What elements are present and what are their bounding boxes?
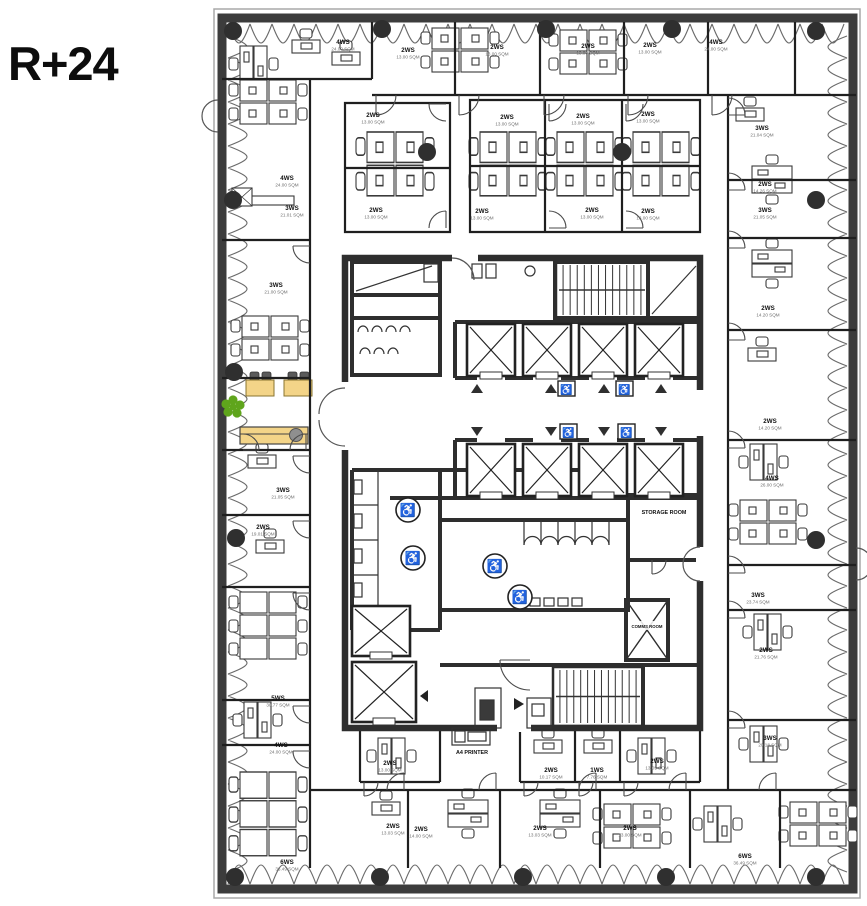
- desk-cluster: [779, 802, 857, 846]
- printer: [468, 732, 486, 741]
- room-area-label: 13.00 SQM: [470, 216, 493, 221]
- elevator-door: [536, 492, 558, 499]
- room-ws-label: 3WS: [269, 282, 282, 289]
- room-area-label: 24.00 SQM: [331, 47, 354, 52]
- window-scallop-row: [228, 865, 844, 884]
- structural-column: [224, 22, 242, 40]
- wheelchair-icon: ♿: [616, 381, 633, 396]
- room-area-label: 23.74 SQM: [746, 600, 769, 605]
- room-area-label: 14.20 SQM: [758, 426, 781, 431]
- elevator-up-icon: [598, 384, 610, 393]
- room-ws-label: 2WS: [490, 44, 503, 51]
- room-area-label: 24.00 SQM: [275, 183, 298, 188]
- elevator: [523, 444, 571, 499]
- room-area-label: 13.00 SQM: [576, 51, 599, 56]
- desk-cluster: [584, 729, 612, 753]
- stall-door-arcs: [524, 537, 609, 546]
- room-area-label: 13.00 SQM: [571, 121, 594, 126]
- room-area-label: 13.00 SQM: [485, 52, 508, 57]
- door-swing-arc: [429, 211, 446, 228]
- svg-text:♿: ♿: [400, 503, 416, 518]
- room-area-label: 13.00 SQM: [636, 119, 659, 124]
- floor-plan-page: R+24: [0, 0, 867, 906]
- room-area-label: 21.76 SQM: [754, 655, 777, 660]
- desk-cluster: [229, 772, 307, 856]
- room-ws-label: 2WS: [533, 825, 546, 832]
- structural-column: [807, 191, 825, 209]
- desk-cluster: [469, 132, 547, 196]
- room-ws-label: 2WS: [500, 114, 513, 121]
- room-area-label: 13.00 SQM: [580, 215, 603, 220]
- elevator-up-icon: [545, 384, 557, 393]
- elevator: [523, 324, 571, 379]
- door-swing-arc: [429, 104, 446, 121]
- room-ws-label: 2WS: [759, 647, 772, 654]
- room-ws-label: 4WS: [280, 175, 293, 182]
- room-area-label: 14.26 SQM: [753, 189, 776, 194]
- sink: [572, 598, 582, 606]
- room-area-label: 13.00 SQM: [618, 833, 641, 838]
- svg-text:♿: ♿: [618, 383, 630, 396]
- desk-cluster: [534, 729, 562, 753]
- room-labels: 4WS24.00 SQM2WS13.00 SQM2WS13.00 SQM2WS1…: [251, 39, 783, 872]
- elevator: [635, 324, 683, 379]
- wheelchair-icon: ♿: [401, 546, 425, 570]
- structural-column: [227, 529, 245, 547]
- desk-cluster: [736, 97, 764, 121]
- marker-petal: [221, 399, 230, 408]
- room-area-label: 21.04 SQM: [750, 133, 773, 138]
- desk-cluster: [356, 132, 434, 196]
- wheelchair-icon: ♿: [558, 381, 575, 396]
- elevator: [635, 444, 683, 499]
- structural-column: [537, 20, 555, 38]
- room-area-label: 36.49 SQM: [275, 867, 298, 872]
- wheelchair-icon: ♿: [618, 424, 635, 439]
- wheelchair-icon: ♿: [508, 585, 532, 609]
- door-swing-arc: [728, 323, 745, 340]
- desk-cluster: [622, 132, 700, 196]
- room-area-label: 13.00 SQM: [495, 122, 518, 127]
- door-swing-arc: [293, 706, 310, 723]
- structural-column: [371, 868, 389, 886]
- room-area-label: 13.00 SQM: [361, 120, 384, 125]
- room-area-label: 20.18 SQM: [758, 743, 781, 748]
- elevator: [579, 324, 627, 379]
- printer: [455, 731, 465, 742]
- wheelchair-icon: ♿: [483, 554, 507, 578]
- elevator-door: [480, 492, 502, 499]
- room-area-label: 13.03 SQM: [528, 833, 551, 838]
- structural-column: [657, 868, 675, 886]
- desk-cluster: [729, 500, 807, 544]
- door-swing-arc: [759, 773, 776, 790]
- elevator-down-icon: [545, 427, 557, 436]
- elevator-down-icon: [471, 427, 483, 436]
- room-ws-label: 2WS: [544, 767, 557, 774]
- room-area-label: 13.00 SQM: [364, 215, 387, 220]
- toilet-stall-walls: [524, 520, 609, 545]
- room-ws-label: 2WS: [576, 113, 589, 120]
- elevator-up-icon: [471, 384, 483, 393]
- room-ws-label: 3WS: [285, 205, 298, 212]
- door-swing-arc: [652, 560, 666, 574]
- structural-column: [373, 20, 391, 38]
- room-area-label: 21.01 SQM: [280, 213, 303, 218]
- room-ws-label: 5WS: [271, 695, 284, 702]
- elevator-down-icon: [655, 427, 667, 436]
- door-swing-arc: [549, 211, 566, 228]
- structural-column: [418, 143, 436, 161]
- room-ws-label: 3WS: [276, 487, 289, 494]
- direction-arrow-icon: [420, 690, 428, 702]
- room-ws-label: 3WS: [758, 207, 771, 214]
- svg-text:♿: ♿: [562, 426, 574, 439]
- structural-column: [514, 868, 532, 886]
- desk-cluster: [229, 80, 307, 124]
- room-ws-label: 2WS: [650, 758, 663, 765]
- urinals: [358, 326, 410, 332]
- room-ws-label: 2WS: [641, 111, 654, 118]
- room-area-label: 36.49 SQM: [733, 861, 756, 866]
- sink: [544, 598, 554, 606]
- door-swing-arc: [293, 246, 310, 263]
- door-swing-arc: [293, 521, 310, 538]
- elevator-door: [592, 492, 614, 499]
- room-ws-label: 1WS: [590, 767, 603, 774]
- structural-column: [613, 143, 631, 161]
- room-ws-label: 4WS: [709, 39, 722, 46]
- structural-column: [663, 20, 681, 38]
- room-area-label: 26.00 SQM: [760, 483, 783, 488]
- door-swing-arc: [293, 456, 310, 473]
- elevator: [467, 444, 515, 499]
- desk-cluster: [248, 444, 276, 468]
- room-area-label: 21.05 SQM: [753, 215, 776, 220]
- elevator-door: [480, 372, 502, 379]
- elevator-door: [536, 372, 558, 379]
- desk-cluster: [693, 806, 742, 842]
- toilet-stall-walls: [352, 470, 378, 605]
- shaft-diagonal: [356, 266, 432, 291]
- room-area-label: 14.00 SQM: [409, 834, 432, 839]
- svg-text:♿: ♿: [560, 383, 572, 396]
- elevator: [467, 324, 515, 379]
- direction-arrow-icon: [514, 698, 524, 710]
- meeting-table: [284, 380, 312, 396]
- room-area-label: 24.00 SQM: [704, 47, 727, 52]
- room-ws-label: 4WS: [336, 39, 349, 46]
- room-ws-label: 2WS: [623, 825, 636, 832]
- room-ws-label: 2WS: [641, 208, 654, 215]
- elevator: [579, 444, 627, 499]
- room-ws-label: 4WS: [765, 475, 778, 482]
- room-ws-label: 3WS: [763, 735, 776, 742]
- room-ws-label: 2WS: [256, 524, 269, 531]
- office-desks: [229, 28, 857, 856]
- elevator-door: [648, 492, 670, 499]
- room-area-label: 7.76 SQM: [587, 775, 608, 780]
- marker-petal: [235, 400, 244, 409]
- stair-flight: [553, 667, 643, 726]
- room-ws-label: 6WS: [280, 859, 293, 866]
- room-area-label: 13.05 SQM: [645, 766, 668, 771]
- room-ws-label: 2WS: [366, 112, 379, 119]
- room-ws-label: 2WS: [643, 42, 656, 49]
- elevator-door: [592, 372, 614, 379]
- door-leaf-diagonal: [652, 266, 696, 314]
- stair-flight: [556, 262, 648, 318]
- desk-cluster: [448, 789, 488, 838]
- urinals: [360, 348, 398, 354]
- storage-room-label: STORAGE ROOM: [642, 510, 687, 516]
- structural-column: [807, 531, 825, 549]
- desk-cluster: [752, 239, 792, 288]
- wheelchair-icon: ♿: [396, 498, 420, 522]
- room-area-label: 30.77 SQM: [266, 703, 289, 708]
- door-swing-arc: [293, 751, 310, 768]
- desk-cluster: [739, 444, 788, 480]
- room-area-label: 13.00 SQM: [638, 50, 661, 55]
- room-ws-label: 2WS: [763, 418, 776, 425]
- room-area-label: 13.00 SQM: [378, 768, 401, 773]
- room-ws-label: 2WS: [761, 305, 774, 312]
- room-area-label: 24.00 SQM: [269, 750, 292, 755]
- svg-text:♿: ♿: [620, 426, 632, 439]
- desk-cluster: [748, 337, 776, 361]
- elevator: [352, 662, 416, 725]
- selected-room-highlight[interactable]: [240, 372, 312, 444]
- room-area-label: 21.00 SQM: [264, 290, 287, 295]
- room-ws-label: 2WS: [383, 760, 396, 767]
- desk-cluster: [743, 614, 792, 650]
- window-scallop-column: [228, 36, 247, 872]
- structural-column: [224, 191, 242, 209]
- desk-cluster: [372, 791, 400, 815]
- room-area-label: 21.05 SQM: [271, 495, 294, 500]
- svg-text:♿: ♿: [512, 590, 528, 605]
- elevator-down-icon: [598, 427, 610, 436]
- wheelchair-icon: ♿: [560, 424, 577, 439]
- room-ws-label: 2WS: [581, 43, 594, 50]
- room-ws-label: 2WS: [585, 207, 598, 214]
- room-ws-label: 2WS: [401, 47, 414, 54]
- door-swing-arc: [728, 231, 745, 248]
- svg-text:♿: ♿: [405, 551, 421, 566]
- room-ws-label: 3WS: [755, 125, 768, 132]
- door-swing-arc: [549, 104, 566, 121]
- svg-text:♿: ♿: [487, 559, 503, 574]
- door-swing-arc: [544, 95, 564, 115]
- elevator-door: [373, 718, 395, 725]
- window-scallop-column: [828, 36, 847, 872]
- meeting-table: [246, 380, 274, 396]
- room-area-label: 13.00 SQM: [396, 55, 419, 60]
- door-swing-arc: [728, 173, 745, 190]
- room-area-label: 14.20 SQM: [756, 313, 779, 318]
- structural-column: [225, 363, 243, 381]
- room-area-label: 13.03 SQM: [381, 831, 404, 836]
- room-ws-label: 2WS: [758, 181, 771, 188]
- room-area-label: 10.17 SQM: [539, 775, 562, 780]
- sink: [558, 598, 568, 606]
- room-ws-label: 2WS: [369, 207, 382, 214]
- door-swing-arc: [479, 773, 496, 790]
- structural-column: [807, 868, 825, 886]
- printer-label: A4 PRINTER: [456, 750, 488, 756]
- structural-column: [226, 868, 244, 886]
- room-ws-label: 2WS: [414, 826, 427, 833]
- comms-room-label: COMMS ROOM: [631, 624, 662, 629]
- room-area-label: 19.01 SQM: [251, 532, 274, 537]
- elevator-door: [648, 372, 670, 379]
- desk-cluster: [421, 28, 499, 72]
- room-ws-label: 2WS: [475, 208, 488, 215]
- marker-center: [229, 403, 236, 410]
- desk-cluster: [546, 132, 624, 196]
- elevator: [352, 606, 410, 659]
- room-ws-label: 4WS: [274, 742, 287, 749]
- floor-plan: ♿♿♿♿♿♿♿♿ STORAGE ROOM COMMS ROOM A4 PRIN…: [0, 0, 867, 906]
- desk-cluster: [292, 29, 320, 53]
- structural-column: [807, 22, 825, 40]
- room-ws-label: 3WS: [751, 592, 764, 599]
- room-ws-label: 2WS: [386, 823, 399, 830]
- elevator-up-icon: [655, 384, 667, 393]
- elevator-door: [370, 652, 392, 659]
- room-ws-label: 6WS: [738, 853, 751, 860]
- room-area-label: 13.00 SQM: [636, 216, 659, 221]
